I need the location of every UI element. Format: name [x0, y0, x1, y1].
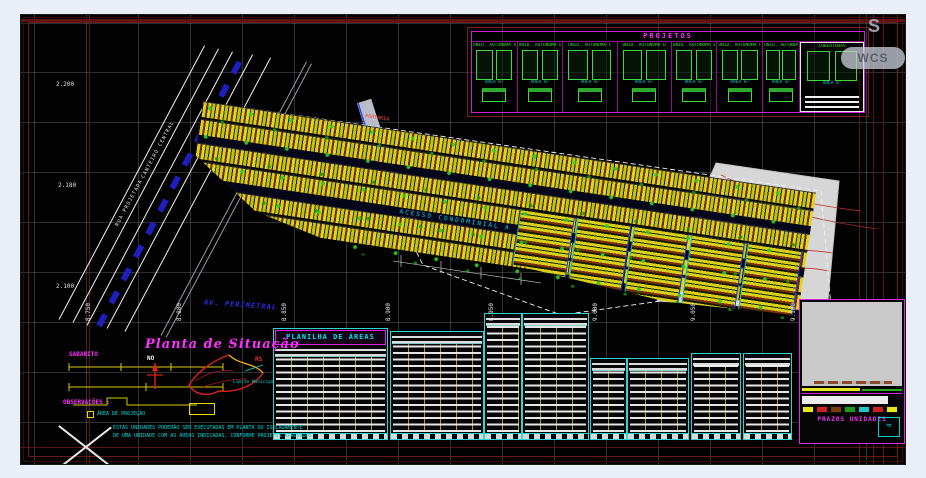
legend-stamp: ≈	[878, 417, 900, 437]
grid-label-bottom: 8.950	[489, 303, 495, 321]
projetos-panel: UNID. AUTÔNOMA BÁREA m²	[518, 42, 564, 112]
area-table	[590, 358, 627, 440]
panel-label: UNID. AUTÔNOMA A	[473, 43, 516, 48]
table-body-rows	[487, 325, 519, 432]
unit-outline	[592, 50, 611, 80]
obs-item-label: ÁREA DE PROJEÇÃO	[97, 411, 145, 417]
lot-column	[624, 226, 688, 303]
panel-label: UNID. AUTÔNOMA D	[619, 43, 670, 48]
table-footer-row	[391, 433, 483, 439]
area-table	[522, 313, 589, 440]
obs-symbol-2	[189, 403, 215, 415]
area-table	[390, 331, 484, 440]
grid-label-bottom: 8.900	[386, 303, 392, 321]
map-state-label: RS	[255, 356, 263, 363]
grid-label-bottom: 8.850	[282, 303, 288, 321]
unit-outline	[741, 50, 758, 80]
cad-canvas[interactable]: RS Limite Municipal RUA PROJETADACANTEIR…	[20, 14, 906, 465]
unit-plan-shapes	[619, 50, 670, 80]
grid-label-bottom: 9.050	[691, 303, 697, 321]
observacoes-title: OBSERVAÇÕES :	[63, 399, 110, 406]
compass-letter: S	[868, 16, 880, 37]
panel-caption: ÁREA m²	[802, 81, 862, 86]
section-sketch	[682, 88, 706, 102]
panel-caption: ÁREA m²	[619, 80, 670, 85]
unit-outline	[646, 50, 665, 80]
unit-outline	[782, 50, 796, 80]
table-body-rows	[276, 356, 385, 432]
unit-outline	[522, 50, 539, 80]
grid-label-bottom: 8.800	[177, 303, 183, 321]
embedded-image	[802, 302, 902, 386]
section-sketch	[578, 88, 602, 102]
panel-caption: ÁREA m²	[519, 80, 562, 85]
panel-label: UNID. AUTÔNOMA B	[519, 43, 562, 48]
north-label: NO	[147, 355, 154, 362]
section-sketch	[769, 88, 793, 102]
area-table	[627, 358, 689, 440]
panel-annotations	[805, 94, 859, 108]
location-map: RS Limite Municipal	[189, 355, 277, 394]
legend-swatch	[830, 406, 842, 413]
legend-swatch	[886, 406, 898, 413]
unit-outline	[696, 50, 713, 80]
projetos-panel: UNID. AUTÔNOMA AÁREA m²	[472, 42, 518, 112]
legend-bar-yellow	[802, 388, 860, 391]
obs-symbol	[87, 411, 94, 418]
unit-outline	[766, 50, 780, 80]
legend-swatch	[844, 406, 856, 413]
table-footer-row	[591, 433, 626, 439]
projetos-panel: UNID. AUTÔNOMA GÁREA m²	[763, 42, 800, 112]
unit-plan-shapes	[564, 50, 615, 80]
unit-outline	[807, 51, 829, 81]
legend-swatch	[872, 406, 884, 413]
section-sketch	[482, 88, 506, 102]
section-sketch	[728, 88, 752, 102]
lot-column	[681, 235, 745, 312]
table-body-rows	[746, 365, 789, 432]
projetos-panel: UNID. AUTÔNOMA EÁREA m²	[672, 42, 718, 112]
note-line-1: ESTAS UNIDADES PODERÃO SER EXECUTADAS EM…	[113, 425, 303, 432]
legend-swatch	[858, 406, 870, 413]
table-body-rows	[525, 325, 586, 432]
note-line-2: DE UMA UNIDADE COM AS ÁREAS INDICADAS, C…	[113, 433, 312, 440]
gabarito-title: GABARITO	[69, 351, 98, 358]
projetos-title: PROJETOS	[472, 32, 864, 41]
lot-column	[567, 218, 631, 295]
panel-label: UNID. AUTÔNOMA F	[718, 43, 761, 48]
section-sketch	[632, 88, 656, 102]
unit-plan-shapes	[718, 50, 761, 80]
lot-column	[510, 209, 574, 286]
page: RS Limite Municipal RUA PROJETADACANTEIR…	[0, 0, 926, 478]
panel-label: UNID. AUTÔNOMA E	[673, 43, 716, 48]
legend-swatch	[816, 406, 828, 413]
grid-label-bottom: 8.750	[86, 303, 92, 321]
panel-caption: ÁREA m²	[718, 80, 761, 85]
unit-plan-shapes	[473, 50, 516, 80]
unit-outline	[722, 50, 739, 80]
grid-label-bottom: 9.000	[593, 303, 599, 321]
area-table	[484, 313, 522, 440]
grid-label-left: 2.180	[58, 183, 76, 189]
table-footer-row	[523, 433, 588, 439]
table-body-rows	[630, 370, 686, 432]
projetos-panel: UNID. AUTÔNOMA FÁREA m²	[717, 42, 763, 112]
panel-caption: ÁREA m²	[764, 80, 798, 85]
table-body-rows	[393, 343, 481, 432]
map-note-label: Limite Municipal	[233, 379, 277, 385]
panel-label: UNID. AUTÔNOMA G	[764, 43, 798, 48]
site-plan-title: Planta de Situação	[145, 337, 300, 352]
unit-outline	[568, 50, 587, 80]
grid-label-left: 2.200	[56, 82, 74, 88]
legend-panel: PRAZOS UNIDADES ≈	[799, 299, 905, 444]
legend-bar-green	[862, 389, 902, 391]
legend-bar-white	[802, 396, 888, 404]
area-table	[743, 353, 792, 440]
grid-label-left: 2.100	[56, 284, 74, 290]
wcs-indicator[interactable]: WCS	[841, 47, 905, 69]
projetos-block: PROJETOS UNID. AUTÔNOMA AÁREA m²UNID. AU…	[471, 31, 865, 113]
table-body-rows	[694, 365, 738, 432]
section-sketch	[528, 88, 552, 102]
legend-swatches	[802, 406, 902, 413]
panel-label: UNID. AUTÔNOMA C	[564, 43, 615, 48]
unit-outline	[676, 50, 693, 80]
unit-plan-shapes	[764, 50, 798, 80]
table-footer-row	[692, 433, 740, 439]
projetos-panels: UNID. AUTÔNOMA AÁREA m²UNID. AUTÔNOMA BÁ…	[472, 41, 864, 112]
grid-label-bottom: 9.100	[791, 303, 797, 321]
legend-swatch	[802, 406, 814, 413]
unit-outline	[476, 50, 493, 80]
unit-plan-shapes	[673, 50, 716, 80]
projetos-panel: UNID. AUTÔNOMA CÁREA m²	[563, 42, 617, 112]
panel-caption: ÁREA m²	[673, 80, 716, 85]
unit-outline	[542, 50, 559, 80]
unit-outline	[623, 50, 642, 80]
legend-line-magenta	[802, 393, 902, 394]
area-table	[691, 353, 741, 440]
unit-outline	[496, 50, 513, 80]
table-footer-row	[628, 433, 688, 439]
unit-plan-shapes	[519, 50, 562, 80]
projetos-panel: UNID. AUTÔNOMA DÁREA m²	[618, 42, 672, 112]
table-footer-row	[744, 433, 791, 439]
panel-caption: ÁREA m²	[473, 80, 516, 85]
table-footer-row	[485, 433, 521, 439]
panel-caption: ÁREA m²	[564, 80, 615, 85]
table-body-rows	[593, 370, 624, 432]
